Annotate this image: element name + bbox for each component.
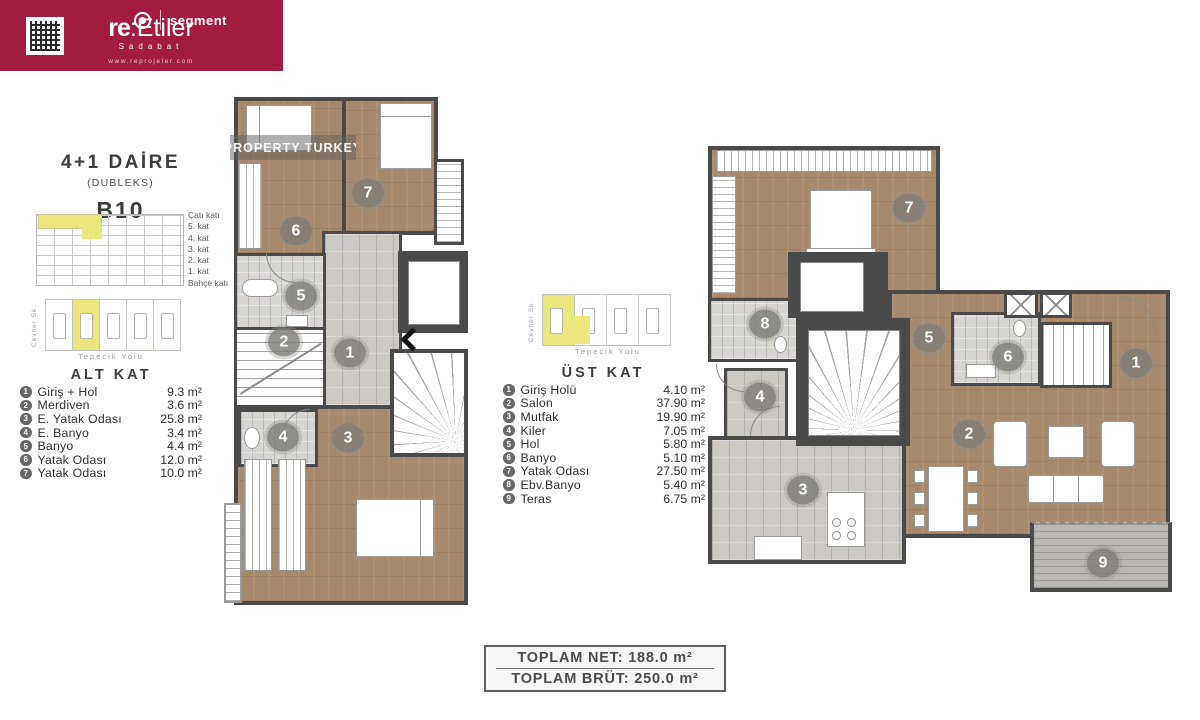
- legend-number: 7: [20, 468, 32, 480]
- legend-number: 3: [503, 411, 515, 423]
- site-plan-upper: Cevher Sk. Tepecik Yolu: [527, 292, 685, 360]
- site-block: [606, 294, 639, 346]
- legend-row: 7Yatak Odası27.50 m²: [503, 465, 705, 479]
- legend-number: 4: [20, 427, 32, 439]
- legend-room-name: Salon: [521, 396, 657, 410]
- brand-banner: re:Etiler Sadabat www.reprojeler.com seg…: [0, 0, 283, 71]
- floor-plan-sheet: re:Etiler Sadabat www.reprojeler.com seg…: [0, 0, 1200, 720]
- armchair: [993, 421, 1027, 467]
- total-net: TOPLAM NET: 188.0 m²: [496, 648, 714, 669]
- legend-number: 1: [20, 386, 32, 398]
- room-badge-4: 4: [744, 383, 776, 412]
- side-street-label: Cevher Sk.: [31, 301, 38, 351]
- legend-room-area: 9.3 m²: [167, 385, 202, 399]
- chair: [967, 470, 978, 483]
- toilet: [774, 336, 787, 353]
- building-elevation-diagram: Çatı katı 5. kat 4. kat 3. kat 2. kat 1.…: [36, 210, 246, 294]
- legend-room-name: Merdiven: [38, 398, 168, 412]
- toilet: [244, 427, 260, 449]
- unit-type: (DUBLEKS): [28, 177, 213, 189]
- stove-burner: [832, 518, 841, 527]
- front-street-label: Tepecik Yolu: [541, 347, 675, 356]
- partner-logos: segment: [134, 8, 227, 32]
- toilet: [1013, 320, 1026, 337]
- legend-room-name: Teras: [521, 492, 664, 506]
- lower-floor-plan: PROPERTY TURKEY 1 2 3 4 5 6 7: [230, 93, 494, 613]
- legend-room-area: 3.6 m²: [167, 398, 202, 412]
- legend-room-name: Giriş + Hol: [38, 385, 168, 399]
- legend-row: 3Mutfak19.90 m²: [503, 410, 705, 424]
- legend-number: 7: [503, 466, 515, 478]
- stove-burner: [832, 531, 841, 540]
- legend-number: 9: [503, 493, 515, 505]
- legend-number: 2: [20, 400, 32, 412]
- total-brut: TOPLAM BRÜT: 250.0 m²: [486, 669, 724, 689]
- stove-burner: [847, 531, 856, 540]
- room-badge-6: 6: [280, 217, 312, 246]
- elevator-car: [800, 262, 864, 312]
- wardrobe: [238, 163, 262, 249]
- legend-room-name: Banyo: [38, 439, 168, 453]
- site-block-highlighted: [72, 299, 100, 351]
- room-badge-6: 6: [992, 343, 1024, 372]
- site-block-highlight-extension: [573, 316, 590, 344]
- dining-table: [928, 466, 964, 532]
- site-plan-lower: Cevher Sk. Tepecik Yolu: [30, 297, 188, 365]
- legend-row: 4E. Banyo3.4 m²: [20, 426, 202, 440]
- watermark: PROPERTY TURKEY: [230, 135, 356, 160]
- elevator-shaft: [398, 251, 468, 333]
- lower-floor-heading: ALT KAT: [30, 367, 192, 383]
- bed-headboard: [380, 103, 432, 117]
- brand-subtitle: Sadabat: [70, 42, 232, 51]
- legend-row: 1Giriş Holü4.10 m²: [503, 383, 705, 397]
- stair-shaft: [796, 318, 910, 446]
- wardrobe: [244, 459, 272, 571]
- elevator-car: [408, 261, 460, 325]
- legend-room-area: 25.8 m²: [160, 412, 202, 426]
- balcony: [224, 503, 242, 603]
- side-street-label: Cevher Sk.: [528, 296, 535, 346]
- site-blocks: [543, 294, 671, 346]
- site-block: [99, 299, 127, 351]
- legend-number: 3: [20, 413, 32, 425]
- sofa: [1028, 475, 1104, 503]
- room-badge-3: 3: [787, 476, 819, 505]
- entry-staircase: [1040, 322, 1112, 388]
- logo-divider: [160, 10, 161, 30]
- site-blocks: [46, 299, 181, 351]
- legend-room-name: E. Banyo: [38, 426, 168, 440]
- legend-room-name: Ebv.Banyo: [521, 478, 664, 492]
- site-block: [45, 299, 73, 351]
- elevation-highlight-step: [82, 226, 102, 239]
- legend-number: 1: [503, 384, 515, 396]
- winder-staircase: [808, 330, 900, 436]
- qr-code-icon: [26, 17, 64, 55]
- chair: [914, 470, 925, 483]
- bed: [810, 190, 872, 252]
- legend-room-area: 12.0 m²: [160, 453, 202, 467]
- upper-floor-legend: 1Giriş Holü4.10 m² 2Salon37.90 m² 3Mutfa…: [503, 383, 705, 505]
- site-block: [638, 294, 671, 346]
- room-badge-7: 7: [352, 179, 384, 208]
- legend-row: 1Giriş + Hol9.3 m²: [20, 385, 202, 399]
- upper-floor-heading: ÜST KAT: [520, 365, 686, 381]
- legend-row: 8Ebv.Banyo5.40 m²: [503, 478, 705, 492]
- elevator-shaft: [788, 252, 888, 318]
- legend-number: 6: [503, 452, 515, 464]
- legend-row: 9Teras6.75 m²: [503, 492, 705, 506]
- legend-number: 5: [503, 438, 515, 450]
- chair: [967, 514, 978, 527]
- closet-column: [712, 176, 736, 294]
- bathtub: [242, 279, 278, 297]
- elevation-grid: [36, 214, 184, 286]
- bed-headboard: [420, 499, 434, 557]
- room-badge-2: 2: [268, 328, 300, 357]
- site-block: [126, 299, 154, 351]
- room-badge-7: 7: [893, 194, 925, 223]
- room-badge-1: 1: [1120, 349, 1152, 378]
- room-badge-3: 3: [332, 424, 364, 453]
- legend-room-name: Hol: [521, 437, 664, 451]
- room-badge-5: 5: [913, 324, 945, 353]
- segment-logo: segment: [170, 13, 227, 28]
- room-badge-2: 2: [953, 420, 985, 449]
- shaft-x-box: [1004, 292, 1038, 318]
- legend-room-name: Yatak Odası: [38, 453, 161, 467]
- sink: [966, 364, 996, 378]
- site-block-highlighted: [542, 294, 575, 346]
- chair: [914, 514, 925, 527]
- sink: [286, 315, 308, 327]
- legend-row: 6Yatak Odası12.0 m²: [20, 453, 202, 467]
- legend-row: 5Banyo4.4 m²: [20, 439, 202, 453]
- closet: [434, 159, 464, 245]
- legend-room-name: Kiler: [521, 424, 664, 438]
- room-badge-4: 4: [267, 423, 299, 452]
- wardrobe: [278, 459, 306, 571]
- legend-room-area: 4.4 m²: [167, 439, 202, 453]
- site-block: [153, 299, 181, 351]
- legend-room-name: Yatak Odası: [521, 464, 657, 478]
- room-badge-9: 9: [1087, 549, 1119, 578]
- door-arc: [716, 364, 744, 392]
- legend-row: 5Hol5.80 m²: [503, 437, 705, 451]
- upper-floor-plan: 1 2 3 4 5 6 7 8 9: [698, 140, 1184, 615]
- legend-row: 6Banyo5.10 m²: [503, 451, 705, 465]
- legend-number: 8: [503, 479, 515, 491]
- legend-number: 5: [20, 440, 32, 452]
- lower-floor-legend: 1Giriş + Hol9.3 m² 2Merdiven3.6 m² 3E. Y…: [20, 385, 202, 480]
- kitchen-counter: [754, 536, 802, 560]
- totals-box: TOPLAM NET: 188.0 m² TOPLAM BRÜT: 250.0 …: [484, 645, 726, 692]
- stove-burner: [847, 518, 856, 527]
- room-badge-8: 8: [749, 310, 781, 339]
- legend-row: 7Yatak Odası10.0 m²: [20, 467, 202, 481]
- legend-room-name: Giriş Holü: [521, 383, 664, 397]
- room-badge-5: 5: [285, 282, 317, 311]
- front-street-label: Tepecik Yolu: [44, 352, 178, 361]
- legend-room-area: 10.0 m²: [160, 466, 202, 480]
- legend-number: 6: [20, 454, 32, 466]
- legend-row: 3E. Yatak Odası25.8 m²: [20, 412, 202, 426]
- shaft-x-box: [1040, 292, 1072, 318]
- circle-logo-icon: [134, 12, 151, 29]
- legend-number: 4: [503, 425, 515, 437]
- armchair: [1101, 421, 1135, 467]
- legend-room-area: 3.4 m²: [167, 426, 202, 440]
- legend-room-name: Banyo: [521, 451, 664, 465]
- legend-number: 2: [503, 398, 515, 410]
- coffee-table: [1048, 426, 1084, 458]
- brand-website: www.reprojeler.com: [70, 58, 232, 65]
- legend-room-name: Yatak Odası: [38, 466, 161, 480]
- chair: [967, 492, 978, 505]
- legend-row: 2Salon37.90 m²: [503, 397, 705, 411]
- unit-title: 4+1 DAİRE: [28, 152, 213, 174]
- closet-row: [716, 150, 932, 172]
- legend-row: 4Kiler7.05 m²: [503, 424, 705, 438]
- legend-room-name: E. Yatak Odası: [38, 412, 161, 426]
- chair: [914, 492, 925, 505]
- legend-row: 2Merdiven3.6 m²: [20, 399, 202, 413]
- winder-staircase: [390, 349, 468, 457]
- room-badge-1: 1: [334, 339, 366, 368]
- legend-room-name: Mutfak: [521, 410, 657, 424]
